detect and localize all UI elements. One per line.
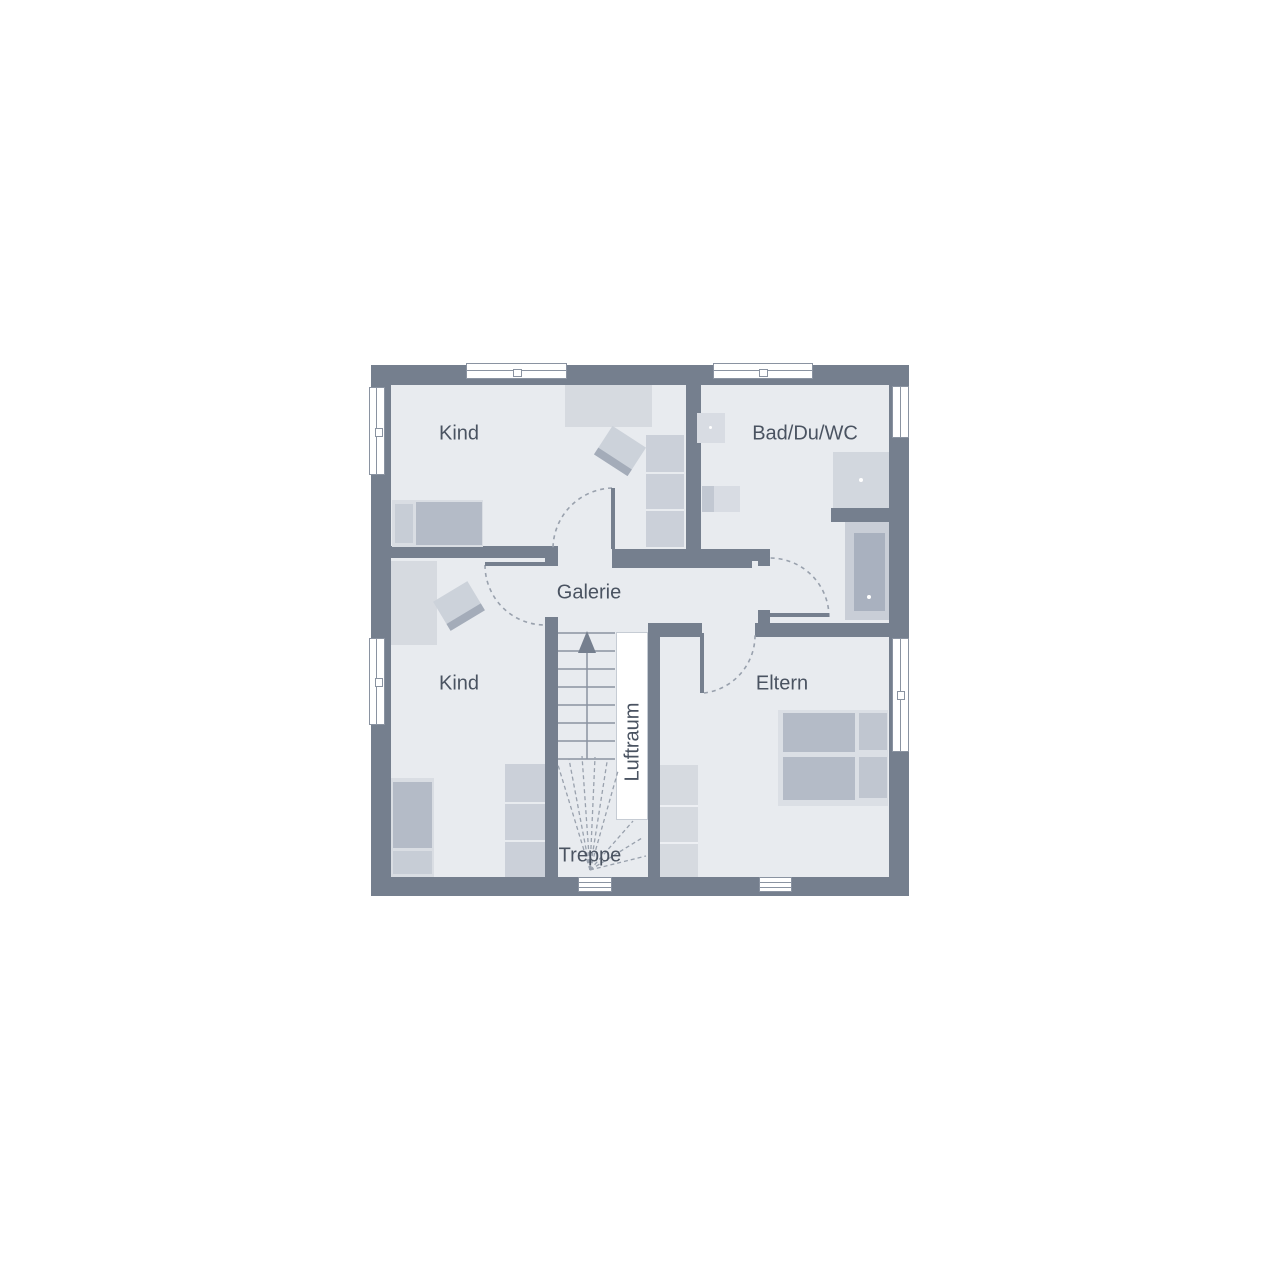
window-bottom-treppe (578, 877, 612, 892)
floor-plan-canvas: Kind Bad/Du/WC Galerie Kind Eltern Luftr… (0, 0, 1280, 1280)
window-latch (513, 369, 522, 377)
window-bottom-eltern (759, 877, 792, 892)
window-top-bad (713, 363, 813, 379)
door-leaf-kind-bottom (485, 562, 545, 566)
room-label-luftraum: Luftraum (622, 703, 645, 782)
room-label-treppe: Treppe (559, 845, 622, 868)
room-label-kind-bottom: Kind (439, 673, 479, 696)
door-leaf-eltern (700, 633, 704, 693)
window-right-eltern (892, 638, 909, 752)
window-latch (897, 691, 905, 700)
window-latch (759, 369, 768, 377)
room-label-eltern: Eltern (756, 673, 808, 696)
floor-plan: Kind Bad/Du/WC Galerie Kind Eltern Luftr… (371, 365, 909, 896)
window-right-bad (892, 386, 909, 438)
stair-direction-arrow (578, 631, 596, 653)
window-left-kind-bottom (369, 638, 385, 725)
room-label-galerie: Galerie (557, 582, 621, 605)
window-left-kind-top (369, 387, 385, 475)
room-label-kind-top: Kind (439, 423, 479, 446)
window-top-kind (466, 363, 567, 379)
door-leaf-bad (770, 613, 829, 617)
room-label-bad: Bad/Du/WC (752, 423, 858, 446)
window-latch (375, 428, 383, 437)
door-leaf-kind-top (611, 488, 615, 549)
door-swing-arcs (485, 488, 829, 693)
window-latch (375, 678, 383, 687)
